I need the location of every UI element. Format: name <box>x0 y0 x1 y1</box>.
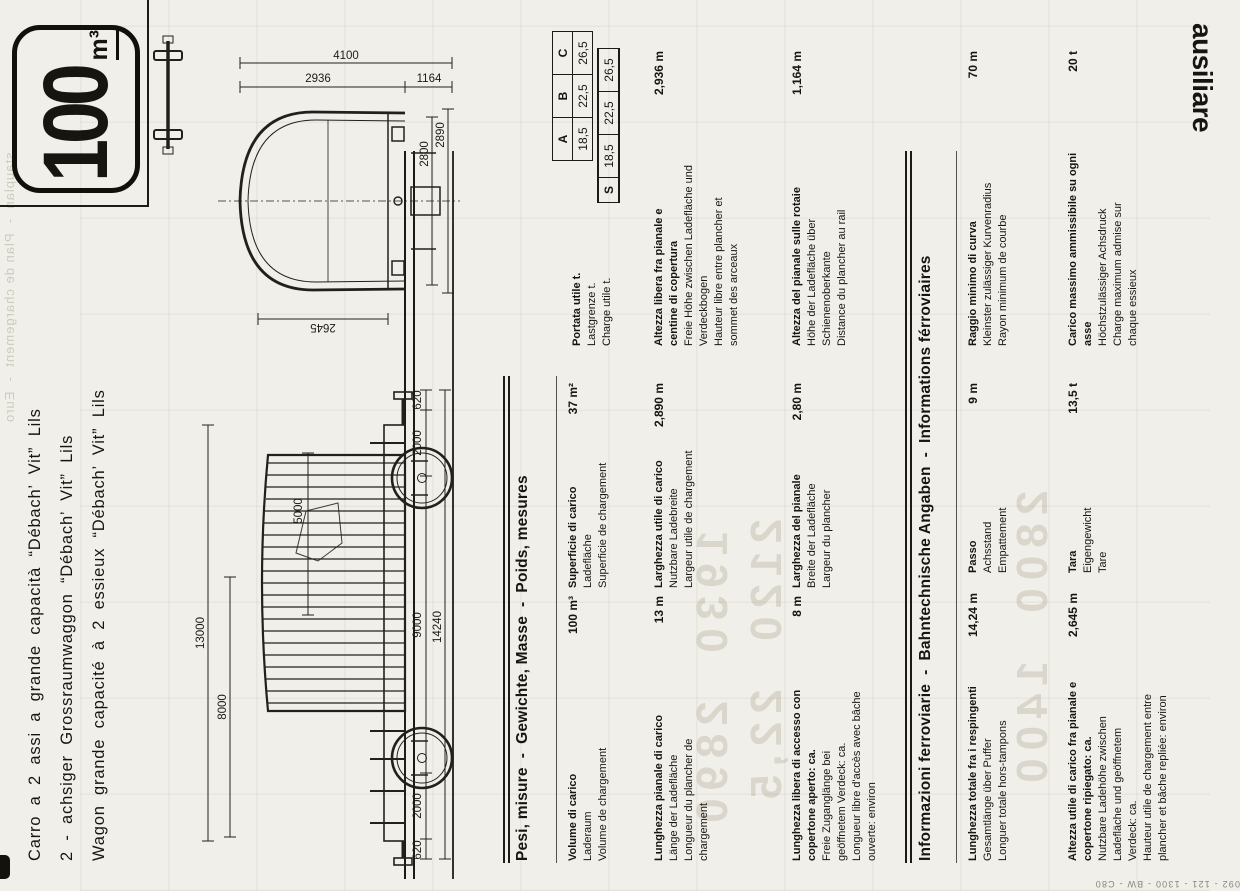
table-cell: 22,5 <box>598 92 619 135</box>
entry-label-de: Breite der Ladefläche <box>805 443 820 588</box>
entry-label-de: Kleinster zulässiger Kurvenradius <box>981 51 996 346</box>
page-title-italian: Carro a 2 assi a grande capacità “Débach… <box>26 408 45 861</box>
spec-entry: Lunghezza pianale di carico Länge der La… <box>652 596 712 861</box>
spec-entry: Larghezza del pianale Breite der Ladeflä… <box>790 383 835 588</box>
page-title-french: Wagon grande capacité à 2 essieux “Débac… <box>90 389 109 861</box>
dim-label: 8000 <box>217 694 229 720</box>
entry-label-fr: Empattement <box>996 383 1011 573</box>
dim-label: 9000 <box>412 612 424 638</box>
dim-label: 4100 <box>333 50 359 62</box>
entry-label-fr: Largeur utile de chargement <box>682 428 697 588</box>
section-header-railway: Informazioni ferroviarie - Bahntechnisch… <box>917 255 935 861</box>
dim-label: 620 <box>412 840 424 859</box>
spec-entry: Lunghezza libera di accesso con coperton… <box>790 596 880 861</box>
entry-label-fr: Distance du plancher au rail <box>835 161 850 346</box>
entry-label-de: Freie Höhe zwischen Ladefläche und Verde… <box>682 151 712 346</box>
entry-label-it: Lunghezza pianale di carico <box>652 596 667 861</box>
entry-label-it: Altezza del pianale sulle rotaie <box>790 136 805 346</box>
spec-entry: Altezza utile di carico fra pianale e co… <box>1066 593 1171 861</box>
entry-value: 100 m³ <box>566 596 581 634</box>
page-title-german: 2 - achsiger Grossraumwaggon “Débach’ Vi… <box>58 435 77 861</box>
print-code: 092 - 121 - 1300 - BW - C80 <box>1095 879 1240 889</box>
datasheet-page: stauplan - Plan de chargement - Euro 193… <box>0 0 1240 891</box>
entry-label-it: Passo <box>966 383 981 573</box>
badge-volume-number: 100 <box>26 68 126 182</box>
entry-value: 14,24 m <box>966 593 981 637</box>
entry-label-fr: Charge maximum admise sur chaque essieux <box>1111 176 1141 346</box>
entry-label-de: Höchstzulässiger Achsdruck <box>1096 51 1111 346</box>
section-rule <box>508 376 510 863</box>
entry-value: 2,80 m <box>790 383 805 420</box>
section-rule <box>503 376 505 863</box>
section-rule <box>905 151 907 863</box>
entry-value: 9 m <box>966 383 981 404</box>
spec-entry: Altezza del pianale sulle rotaie Höhe de… <box>790 51 850 346</box>
entry-label-it: Larghezza del pianale <box>790 443 805 588</box>
table-cell: 18,5 <box>598 135 619 178</box>
entry-label-fr: Rayon minimum de courbe <box>996 51 1011 346</box>
entry-label-de: Lastgrenze t. <box>585 216 600 346</box>
end-view-drawing: 4100 2936 1164 2645 2800 2890 <box>178 14 478 359</box>
entry-label-de: Nutzbare Ladehöhe zwischen Ladefläche un… <box>1096 696 1141 861</box>
entry-label-it: Superficie di carico <box>566 428 581 588</box>
dim-label: 1164 <box>417 73 442 85</box>
table-header-cell: B <box>553 75 573 118</box>
volume-badge: 100 m³ <box>12 25 140 193</box>
table-cell: 26,5 <box>573 32 593 75</box>
entry-value: 2,936 m <box>652 51 667 95</box>
entry-label-de: Länge der Ladefläche <box>667 596 682 861</box>
entry-label-de: Höhe der Ladefläche über Schienenoberkan… <box>805 186 835 346</box>
entry-label-fr: Longueur libre d'accès avec bâche ouvert… <box>850 686 880 861</box>
section-rule <box>556 376 557 863</box>
entry-label-fr: Volume de chargement <box>596 596 611 861</box>
dim-label: 2890 <box>435 122 447 148</box>
entry-label-de: Achsstand <box>981 383 996 573</box>
badge-frame-line <box>0 205 147 207</box>
table-cell: 22,5 <box>573 75 593 118</box>
entry-label-fr: Charge utile t. <box>600 216 615 346</box>
entry-value: 20 t <box>1066 51 1081 72</box>
bleedthrough-text: 2120 22,5 <box>742 519 792 807</box>
entry-value: 37 m² <box>566 383 581 414</box>
scan-artifact-mark <box>0 855 10 879</box>
table-header-cell: A <box>553 118 573 161</box>
table-cell: 18,5 <box>573 118 593 161</box>
badge-frame-line <box>147 0 149 207</box>
bleedthrough-text: stauplan - Plan de chargement - Euro <box>2 152 17 423</box>
entry-value: 1,164 m <box>790 51 805 95</box>
entry-label-de: Laderaum <box>581 596 596 861</box>
dim-label: 620 <box>412 390 424 409</box>
entry-label-fr: Largeur du plancher <box>820 443 835 588</box>
dim-label: 2000 <box>412 793 424 819</box>
dim-label: 5000 <box>293 498 305 524</box>
catalog-tab-label: ausiliare <box>1186 23 1218 163</box>
entry-label-fr: Hauteur utile de chargement entre planch… <box>1141 651 1171 861</box>
bleedthrough-text: 2800 1400 <box>1008 491 1058 791</box>
dim-label: 14240 <box>432 611 444 643</box>
spec-entry: Tara Eigengewicht Tare 13,5 t <box>1066 383 1111 573</box>
section-header-weights: Pesi, misure - Gewichte, Masse - Poids, … <box>514 475 532 861</box>
entry-label-it: Carico massimo ammissibile su ogni asse <box>1066 146 1096 346</box>
entry-label-de: Nutzbare Ladebreite <box>667 383 682 588</box>
entry-label-it: Altezza libera fra pianale e centine di … <box>652 171 682 346</box>
table-cell: 26,5 <box>598 49 619 92</box>
table-header-cell: C <box>553 32 573 75</box>
entry-label-fr: Superficie de chargement <box>596 428 611 588</box>
entry-label-it: Volume di carico <box>566 596 581 861</box>
spec-entry: Altezza libera fra pianale e centine di … <box>652 51 742 346</box>
dim-label: 2936 <box>305 73 331 85</box>
entry-value: 8 m <box>790 596 805 617</box>
dim-label: 2645 <box>310 321 336 333</box>
entry-value: 13 m <box>652 596 667 623</box>
spec-entry: Larghezza utile di carico Nutzbare Ladeb… <box>652 383 697 588</box>
entry-label-de: Gesamtlänge über Puffer <box>981 593 996 861</box>
entry-value: 13,5 t <box>1066 383 1081 414</box>
entry-label-it: Lunghezza libera di accesso con coperton… <box>790 686 820 861</box>
spec-entry: Portata utile t. Lastgrenze t. Charge ut… <box>570 216 615 346</box>
entry-label-fr: Hauteur libre entre plancher et sommet d… <box>712 171 742 346</box>
side-view-drawing: 13000 8000 5000 620 2000 9000 2000 620 1… <box>178 353 478 883</box>
spec-entry: Volume di carico Laderaum Volume de char… <box>566 596 611 861</box>
spec-entry: Superficie di carico Ladefläche Superfic… <box>566 383 611 588</box>
entry-label-fr: Tare <box>1096 383 1111 573</box>
scanned-page-viewport: stauplan - Plan de chargement - Euro 193… <box>0 0 1240 891</box>
badge-volume-unit: m³ <box>85 30 119 61</box>
entry-value: 2,890 m <box>652 383 667 427</box>
entry-label-fr: Longueur du plancher de chargement <box>682 716 712 861</box>
entry-value: 70 m <box>966 51 981 78</box>
entry-label-de: Ladefläche <box>581 383 596 588</box>
spec-entry: Lunghezza totale fra i respingenti Gesam… <box>966 593 1011 861</box>
entry-label-it: Larghezza utile di carico <box>652 433 667 588</box>
entry-label-de: Eigengewicht <box>1081 383 1096 573</box>
spec-entry: Carico massimo ammissibile su ogni asse … <box>1066 51 1141 346</box>
entry-label-it: Altezza utile di carico fra pianale e co… <box>1066 646 1096 861</box>
section-rule <box>956 151 957 863</box>
entry-label-it: Raggio minimo di curva <box>966 51 981 346</box>
entry-label-fr: Longuer totale hors-tampons <box>996 593 1011 861</box>
dim-label: 2800 <box>419 141 431 167</box>
spec-entry: Passo Achsstand Empattement 9 m <box>966 383 1011 573</box>
entry-label-de: Freie Zuganglänge bei geöffnetem Verdeck… <box>820 711 850 861</box>
section-rule <box>910 151 912 863</box>
dim-label: 2000 <box>412 430 424 456</box>
table-s-label: S <box>598 178 619 203</box>
spec-entry: Raggio minimo di curva Kleinster zulässi… <box>966 51 1011 346</box>
entry-value: 2,645 m <box>1066 593 1081 637</box>
load-limit-table: A B C 18,5 22,5 26,5 S 18,5 22,5 26,5 <box>552 31 620 203</box>
entry-label-it: Portata utile t. <box>570 216 585 346</box>
dim-label: 13000 <box>195 617 207 649</box>
